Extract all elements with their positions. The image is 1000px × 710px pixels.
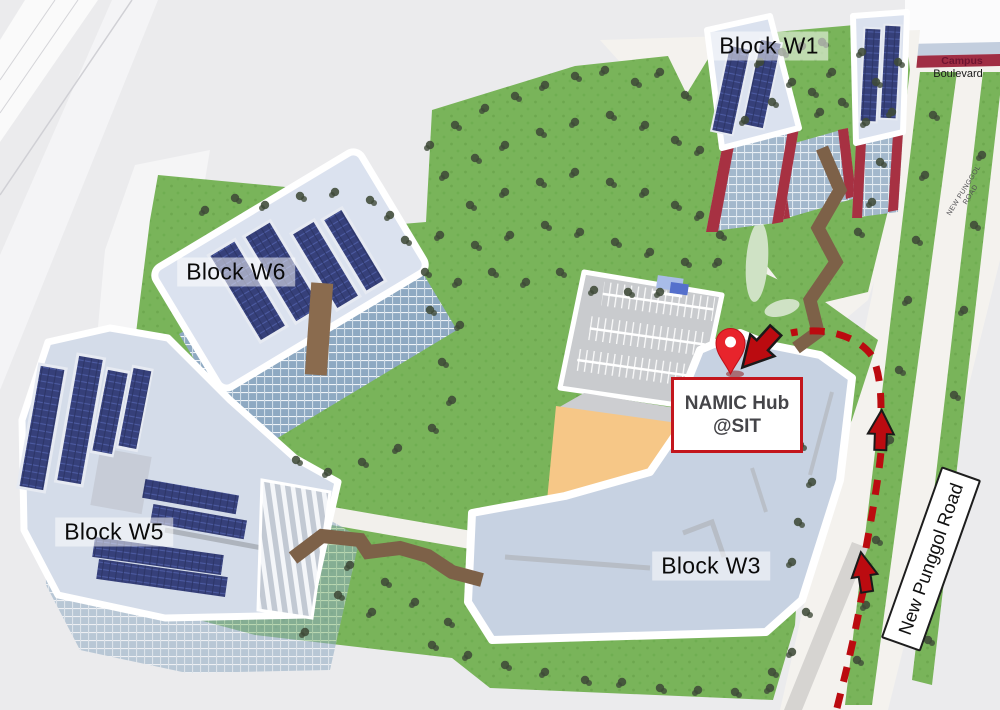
destination-callout: NAMIC Hub @SIT [671, 377, 803, 453]
label-block-w5: Block W5 [55, 518, 173, 547]
label-block-w1: Block W1 [710, 32, 828, 61]
label-block-w6: Block W6 [177, 258, 295, 287]
destination-callout-line2: @SIT [713, 415, 761, 438]
map-canvas [0, 0, 1000, 710]
destination-callout-line1: NAMIC Hub [685, 392, 789, 415]
label-block-w3: Block W3 [652, 552, 770, 581]
label-campus-boulevard-line2: Boulevard [933, 68, 983, 80]
label-campus-boulevard-line1: Campus [941, 55, 982, 67]
campus-map: Block W1 Block W6 Block W5 Block W3 NAMI… [0, 0, 1000, 710]
